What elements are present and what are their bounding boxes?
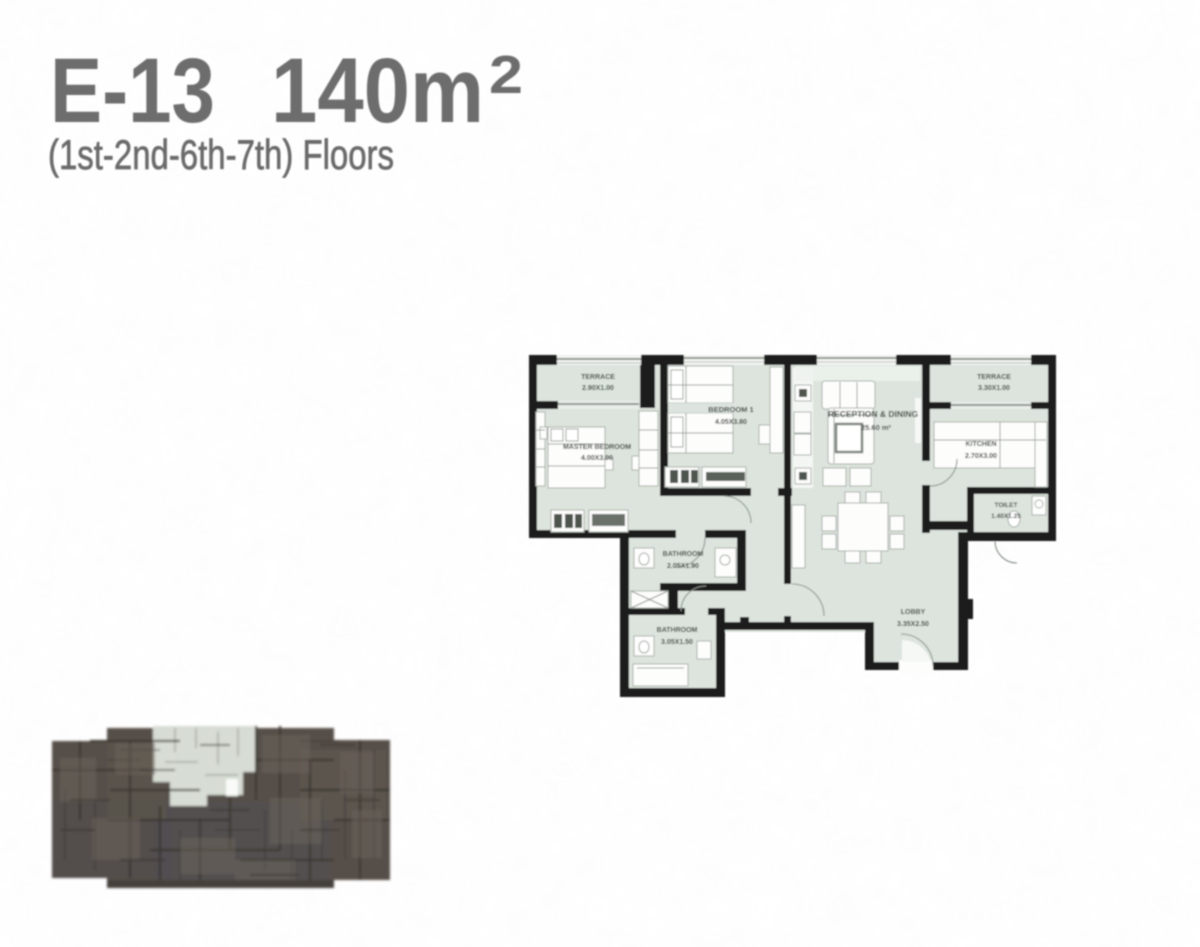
svg-text:BATHROOM: BATHROOM	[663, 551, 704, 558]
svg-text:RECEPTION & DINING: RECEPTION & DINING	[828, 409, 919, 419]
svg-text:KITCHEN: KITCHEN	[965, 441, 996, 448]
svg-text:TOILET: TOILET	[995, 502, 1018, 509]
svg-text:LOBBY: LOBBY	[901, 609, 926, 616]
svg-text:3.05X1.50: 3.05X1.50	[661, 639, 693, 646]
svg-text:1.40X1.25: 1.40X1.25	[991, 513, 1021, 520]
svg-text:2.05X1.90: 2.05X1.90	[667, 563, 699, 570]
svg-text:3.30X1.00: 3.30X1.00	[978, 385, 1010, 392]
svg-text:2.70X3.00: 2.70X3.00	[965, 453, 997, 460]
svg-text:4.05X3.80: 4.05X3.80	[715, 419, 747, 426]
svg-text:E-13: E-13	[50, 40, 215, 142]
svg-text:BATHROOM: BATHROOM	[657, 627, 698, 634]
svg-text:BEDROOM 1: BEDROOM 1	[708, 405, 753, 414]
svg-text:MASTER BEDROOM: MASTER BEDROOM	[563, 444, 631, 451]
svg-text:3.35X2.50: 3.35X2.50	[897, 621, 929, 628]
svg-text:2.90X1.00: 2.90X1.00	[582, 385, 614, 392]
svg-text:2: 2	[489, 45, 523, 105]
svg-text:140m: 140m	[271, 40, 484, 142]
svg-text:25.60 m²: 25.60 m²	[861, 423, 892, 432]
svg-text:TERRACE: TERRACE	[977, 374, 1011, 381]
svg-text:(1st-2nd-6th-7th) Floors: (1st-2nd-6th-7th) Floors	[48, 131, 394, 178]
svg-text:4.00X3.00: 4.00X3.00	[581, 455, 613, 462]
svg-text:TERRACE: TERRACE	[581, 374, 615, 381]
